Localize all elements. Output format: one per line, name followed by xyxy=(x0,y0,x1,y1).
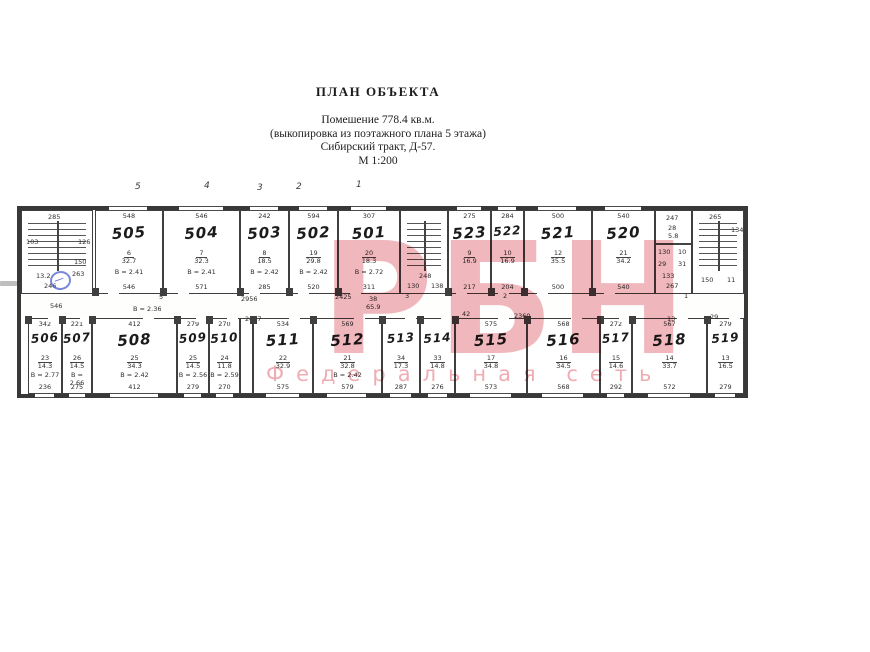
room-inventory-area: 3417.3 xyxy=(383,355,419,370)
room-516: 5685161634.5568 xyxy=(527,318,600,394)
corridor-label: 13 xyxy=(667,316,675,323)
window xyxy=(351,206,386,211)
door-opening xyxy=(677,317,688,322)
room-inventory-area: 1514.6 xyxy=(601,355,631,370)
stair-central-flight-left xyxy=(407,223,424,269)
room-509: 2795092514.5В = 2.56279 xyxy=(177,318,209,394)
door-opening xyxy=(456,290,467,295)
room-number-handwritten: 504 xyxy=(163,222,239,245)
wall-pier xyxy=(629,316,636,324)
wall-pier xyxy=(521,288,528,296)
room-number-handwritten: 522 xyxy=(492,223,524,239)
room-area-value: 34.5 xyxy=(528,363,599,370)
room-top-dim: 500 xyxy=(525,213,591,220)
stair-right-flight-left xyxy=(699,223,718,269)
room-ceiling-height: В = 2.41 xyxy=(164,268,239,276)
corridor-label: 42 xyxy=(462,311,470,318)
stair-left-flight-left xyxy=(28,223,57,269)
room-area-value: 18.3 xyxy=(339,258,399,265)
window xyxy=(299,206,326,211)
room-number-handwritten: 502 xyxy=(289,222,337,243)
room-bottom-dim: 500 xyxy=(525,284,591,291)
room-top-dim: 342 xyxy=(29,321,61,328)
door-opening xyxy=(143,317,154,322)
window xyxy=(538,206,576,211)
room-502: 5945021929.8В = 2.42520 xyxy=(289,210,338,294)
room-ceiling-height: В = 2.42 xyxy=(314,371,381,379)
room-bottom-dim: 279 xyxy=(708,384,743,391)
room-area-value: 33.7 xyxy=(633,363,706,370)
room-520: 5405202134.2540 xyxy=(592,210,655,294)
room-number-handwritten: 521 xyxy=(524,222,591,245)
stair-central: 248130138 xyxy=(400,210,448,294)
document-address-line: Сибирский тракт, Д-57. xyxy=(198,141,558,155)
utility-label: 28 xyxy=(668,225,676,232)
room-top-dim: 284 xyxy=(492,213,523,220)
room-506: 3425062314.3В = 2.77236 xyxy=(28,318,62,394)
room-inventory-area: 1734.8 xyxy=(456,355,526,370)
room-508: 4125082534.3В = 2.42412 xyxy=(92,318,177,394)
room-bottom-dim: 568 xyxy=(528,384,599,391)
room-514: 5143314.8276 xyxy=(420,318,455,394)
room-inventory-area: 2134.2 xyxy=(593,250,654,265)
document-area-line: Помешение 778.4 кв.м. xyxy=(198,114,558,128)
room-area-value: 18.5 xyxy=(241,258,288,265)
room-bottom-dim: 311 xyxy=(339,284,399,291)
room-inventory-area: 818.5 xyxy=(241,250,288,265)
utility-label: 130 xyxy=(658,249,670,256)
room-top-dim: 412 xyxy=(93,321,176,328)
room-number-handwritten: 513 xyxy=(383,330,420,346)
stair-left-label: 103 xyxy=(26,239,38,246)
utility-divider xyxy=(656,243,691,245)
room-top-dim: 279 xyxy=(178,321,208,328)
corridor-label: 29 xyxy=(710,314,718,321)
room-number-handwritten: 520 xyxy=(592,222,654,244)
window xyxy=(327,393,366,398)
door-opening xyxy=(108,290,119,295)
room-top-dim: 575 xyxy=(456,321,526,328)
window xyxy=(35,393,54,398)
wall-pier xyxy=(379,316,386,324)
window xyxy=(498,206,516,211)
wall-pier xyxy=(310,316,317,324)
room-top-dim: 569 xyxy=(314,321,381,328)
room-area-value: 34.8 xyxy=(456,363,526,370)
room-bottom-dim: 520 xyxy=(290,284,337,291)
corridor-label: 1 xyxy=(684,293,688,300)
corridor-label: 38 xyxy=(369,296,377,303)
room-inventory-area: 2314.3 xyxy=(29,355,61,370)
room-area-value: 32.3 xyxy=(164,258,239,265)
wall-pier xyxy=(417,316,424,324)
stair-left-label: 546 xyxy=(50,303,62,310)
window xyxy=(179,206,223,211)
room-512: 5695122132.8В = 2.42579 xyxy=(313,318,382,394)
room-inventory-area: 732.3 xyxy=(164,250,239,265)
room-inventory-area: 2514.5 xyxy=(178,355,208,370)
room-number-handwritten: 507 xyxy=(63,330,92,346)
room-inventory-area: 2614.5 xyxy=(63,355,91,370)
wall-pier xyxy=(589,288,596,296)
room-number-handwritten: 512 xyxy=(313,329,381,352)
axis-label-4: 4 xyxy=(204,181,210,191)
window xyxy=(542,393,583,398)
room-number-handwritten: 506 xyxy=(29,330,62,346)
door-opening xyxy=(537,290,548,295)
wall-pier xyxy=(704,316,711,324)
closet-strip xyxy=(240,318,253,394)
room-area-value: 17.3 xyxy=(383,363,419,370)
wall-pier xyxy=(92,288,99,296)
stair-central-label: 248 xyxy=(419,273,431,280)
stair-central-label: 138 xyxy=(431,283,443,290)
room-bottom-dim: 571 xyxy=(164,284,239,291)
wall-pier xyxy=(335,288,342,296)
stair-left-label: 150 xyxy=(74,259,86,266)
scanned-floor-plan-page: ПЛАН ОБЪЕКТА Помешение 778.4 кв.м. (выко… xyxy=(0,0,870,652)
room-number-handwritten: 503 xyxy=(240,222,288,243)
title-block: ПЛАН ОБЪЕКТА Помешение 778.4 кв.м. (выко… xyxy=(198,84,558,168)
room-518: 5675181433.7572 xyxy=(632,318,707,394)
stair-right-label: 150 xyxy=(701,277,713,284)
room-517: 2725171514.6292 xyxy=(600,318,632,394)
wall-pier xyxy=(160,288,167,296)
axis-label-2: 2 xyxy=(296,182,302,192)
wall-pier xyxy=(237,288,244,296)
window xyxy=(457,206,481,211)
window xyxy=(715,393,735,398)
wall-pier xyxy=(452,316,459,324)
room-area-value: 32.8 xyxy=(314,363,381,370)
room-area-value: 34.2 xyxy=(593,258,654,265)
stair-left-label: 13.2 xyxy=(36,273,50,280)
window xyxy=(69,393,85,398)
utility-label: 133 xyxy=(662,273,674,280)
room-number-handwritten: 505 xyxy=(95,222,162,245)
room-number-handwritten: 517 xyxy=(601,330,632,346)
room-top-dim: 307 xyxy=(339,213,399,220)
window xyxy=(266,393,300,398)
room-inventory-area: 3314.8 xyxy=(421,355,454,370)
door-opening xyxy=(298,290,309,295)
wall-pier xyxy=(488,288,495,296)
room-area-value: 16.9 xyxy=(449,258,490,265)
room-inventory-area: 916.9 xyxy=(449,250,490,265)
room-bottom-dim: 292 xyxy=(601,384,631,391)
corridor-label: 2 xyxy=(503,293,507,300)
room-number-handwritten: 515 xyxy=(455,328,526,351)
door-opening xyxy=(604,290,615,295)
window xyxy=(390,393,411,398)
room-ceiling-height: В = 2.42 xyxy=(241,268,288,276)
room-523: 275523916.9217 xyxy=(448,210,491,294)
corridor-label: В = 2.36 xyxy=(133,306,162,313)
room-inventory-area: 1316.5 xyxy=(708,355,743,370)
room-top-dim: 270 xyxy=(210,321,239,328)
wall-pier xyxy=(206,316,213,324)
wall-pier xyxy=(445,288,452,296)
room-503: 242503818.5В = 2.42285 xyxy=(240,210,289,294)
stair-right-divider xyxy=(718,221,720,271)
stair-left-label: 126 xyxy=(78,239,90,246)
room-top-dim: 594 xyxy=(290,213,337,220)
room-area-value: 14.5 xyxy=(178,363,208,370)
room-area-value: 16.5 xyxy=(708,363,743,370)
room-507: 2215072614.5В = 2.66275 xyxy=(62,318,92,394)
room-bottom-dim: 546 xyxy=(96,284,162,291)
corridor-label: 2956 xyxy=(241,296,258,303)
room-number-handwritten: 523 xyxy=(448,223,490,244)
room-ceiling-height: В = 2.41 xyxy=(96,268,162,276)
room-top-dim: 272 xyxy=(601,321,631,328)
room-top-dim: 568 xyxy=(528,321,599,328)
room-number-handwritten: 518 xyxy=(632,328,706,351)
stair-right-label: 134 xyxy=(731,227,743,234)
room-511: 5345112232.9575 xyxy=(253,318,313,394)
room-inventory-area: 2232.9 xyxy=(254,355,312,370)
stair-right: 26513415011 xyxy=(692,210,744,294)
room-inventory-area: 1634.5 xyxy=(528,355,599,370)
stair-right-label: 265 xyxy=(709,214,721,221)
room-area-value: 14.3 xyxy=(29,363,61,370)
room-inventory-area: 1235.5 xyxy=(525,250,591,265)
room-top-dim: 279 xyxy=(708,321,743,328)
axis-label-1: 1 xyxy=(356,180,362,190)
stair-left-label: 263 xyxy=(72,271,84,278)
utility-label: 5.8 xyxy=(668,233,678,240)
room-top-dim: 546 xyxy=(164,213,239,220)
room-ceiling-height: В = 2.59 xyxy=(210,371,239,379)
room-area-value: 14.5 xyxy=(63,363,91,370)
room-505: 548505632.7В = 2.41546 xyxy=(95,210,163,294)
room-ceiling-height: В = 2.72 xyxy=(339,268,399,276)
utility-label: 10 xyxy=(678,249,686,256)
room-number-handwritten: 508 xyxy=(92,328,176,352)
stair-central-label: 130 xyxy=(407,283,419,290)
floor-plan-drawing: 548505632.7В = 2.41546546504732.3В = 2.4… xyxy=(17,206,748,398)
wall-pier xyxy=(250,316,257,324)
room-bottom-dim: 275 xyxy=(63,384,91,391)
room-inventory-area: 632.7 xyxy=(96,250,162,265)
wall-pier xyxy=(25,316,32,324)
room-top-dim: 221 xyxy=(63,321,91,328)
room-515: 5755151734.8573 xyxy=(455,318,527,394)
window xyxy=(428,393,447,398)
room-bottom-dim: 572 xyxy=(633,384,706,391)
room-522: 2845221016.9204 xyxy=(491,210,524,294)
room-inventory-area: 2534.3 xyxy=(93,355,176,370)
room-top-dim: 275 xyxy=(449,213,490,220)
window xyxy=(250,206,277,211)
utility-label: 31 xyxy=(678,261,686,268)
room-bottom-dim: 285 xyxy=(241,284,288,291)
room-519: 2795191316.5279 xyxy=(707,318,744,394)
stair-right-label: 11 xyxy=(727,277,735,284)
window xyxy=(607,393,624,398)
room-ceiling-height: В = 2.56 xyxy=(178,371,208,379)
room-inventory-area: 1016.9 xyxy=(492,250,523,265)
door-opening xyxy=(571,317,582,322)
room-bottom-dim: 412 xyxy=(93,384,176,391)
room-501: 3075012018.3В = 2.72311 xyxy=(338,210,400,294)
room-inventory-area: 2132.8 xyxy=(314,355,381,370)
room-number-handwritten: 509 xyxy=(178,330,209,346)
stair-left-label: 285 xyxy=(48,214,60,221)
utility-label: 267 xyxy=(666,283,678,290)
door-opening xyxy=(227,317,238,322)
corridor-label: 65.9 xyxy=(366,304,380,311)
wall-pier xyxy=(59,316,66,324)
room-bottom-dim: 540 xyxy=(593,284,654,291)
room-bottom-dim: 573 xyxy=(456,384,526,391)
room-510: 2705102411.8В = 2.59270 xyxy=(209,318,240,394)
room-bottom-dim: 217 xyxy=(449,284,490,291)
room-bottom-dim: 575 xyxy=(254,384,312,391)
room-bottom-dim: 270 xyxy=(210,384,239,391)
door-opening xyxy=(354,317,365,322)
room-inventory-area: 2018.3 xyxy=(339,250,399,265)
room-504: 546504732.3В = 2.41571 xyxy=(163,210,240,294)
room-521: 5005211235.5500 xyxy=(524,210,592,294)
room-inventory-area: 1433.7 xyxy=(633,355,706,370)
room-area-value: 35.5 xyxy=(525,258,591,265)
room-area-value: 14.6 xyxy=(601,363,631,370)
room-area-value: 14.8 xyxy=(421,363,454,370)
room-number-handwritten: 516 xyxy=(527,328,599,351)
room-bottom-dim: 236 xyxy=(29,384,61,391)
room-area-value: 29.8 xyxy=(290,258,337,265)
wall-pier xyxy=(597,316,604,324)
door-opening xyxy=(729,317,740,322)
room-bottom-dim: 287 xyxy=(383,384,419,391)
wall-pier xyxy=(174,316,181,324)
room-number-handwritten: 501 xyxy=(338,222,399,244)
room-bottom-dim: 276 xyxy=(421,384,454,391)
room-top-dim: 548 xyxy=(96,213,162,220)
axis-label-3: 3 xyxy=(257,183,263,193)
room-area-value: 34.3 xyxy=(93,363,176,370)
axis-label-5: 5 xyxy=(135,182,141,192)
room-bottom-dim: 579 xyxy=(314,384,381,391)
stair-left-divider xyxy=(57,221,59,271)
window xyxy=(109,206,147,211)
window xyxy=(648,393,690,398)
utility-label: 29 xyxy=(658,261,666,268)
room-number-handwritten: 514 xyxy=(421,330,455,346)
utility-label: 247 xyxy=(666,215,678,222)
door-opening xyxy=(441,317,452,322)
window xyxy=(216,393,233,398)
document-extract-line: (выкопировка из поэтажного плана 5 этажа… xyxy=(198,128,558,142)
wall-pier xyxy=(286,288,293,296)
door-opening xyxy=(498,317,509,322)
room-top-dim: 540 xyxy=(593,213,654,220)
stair-central-flight-right xyxy=(424,223,441,269)
wall-pier xyxy=(89,316,96,324)
room-top-dim: 534 xyxy=(254,321,312,328)
room-inventory-area: 2411.8 xyxy=(210,355,239,370)
room-ceiling-height: В = 2.42 xyxy=(93,371,176,379)
room-area-value: 32.7 xyxy=(96,258,162,265)
wall-pier xyxy=(524,316,531,324)
window xyxy=(605,206,640,211)
stair-central-divider xyxy=(424,221,426,271)
window xyxy=(184,393,201,398)
door-opening xyxy=(48,317,59,322)
window xyxy=(110,393,158,398)
corridor-label: 3 xyxy=(405,293,409,300)
room-area-value: 32.9 xyxy=(254,363,312,370)
room-number-handwritten: 511 xyxy=(253,329,312,351)
room-area-value: 16.9 xyxy=(492,258,523,265)
left-margin-mark xyxy=(0,281,17,286)
room-area-value: 11.8 xyxy=(210,363,239,370)
room-bottom-dim: 279 xyxy=(178,384,208,391)
document-title: ПЛАН ОБЪЕКТА xyxy=(198,84,558,100)
document-scale-line: М 1:200 xyxy=(198,155,558,169)
room-number-handwritten: 510 xyxy=(210,330,240,346)
room-ceiling-height: В = 2.77 xyxy=(29,371,61,379)
utility-rooms-block: 247285.8130102931133267 xyxy=(655,210,692,294)
room-inventory-area: 1929.8 xyxy=(290,250,337,265)
room-top-dim: 242 xyxy=(241,213,288,220)
window xyxy=(470,393,511,398)
room-513: 5133417.3287 xyxy=(382,318,420,394)
door-opening xyxy=(289,317,300,322)
door-opening xyxy=(405,317,416,322)
room-ceiling-height: В = 2.42 xyxy=(290,268,337,276)
room-number-handwritten: 519 xyxy=(708,330,744,346)
door-opening xyxy=(178,290,189,295)
